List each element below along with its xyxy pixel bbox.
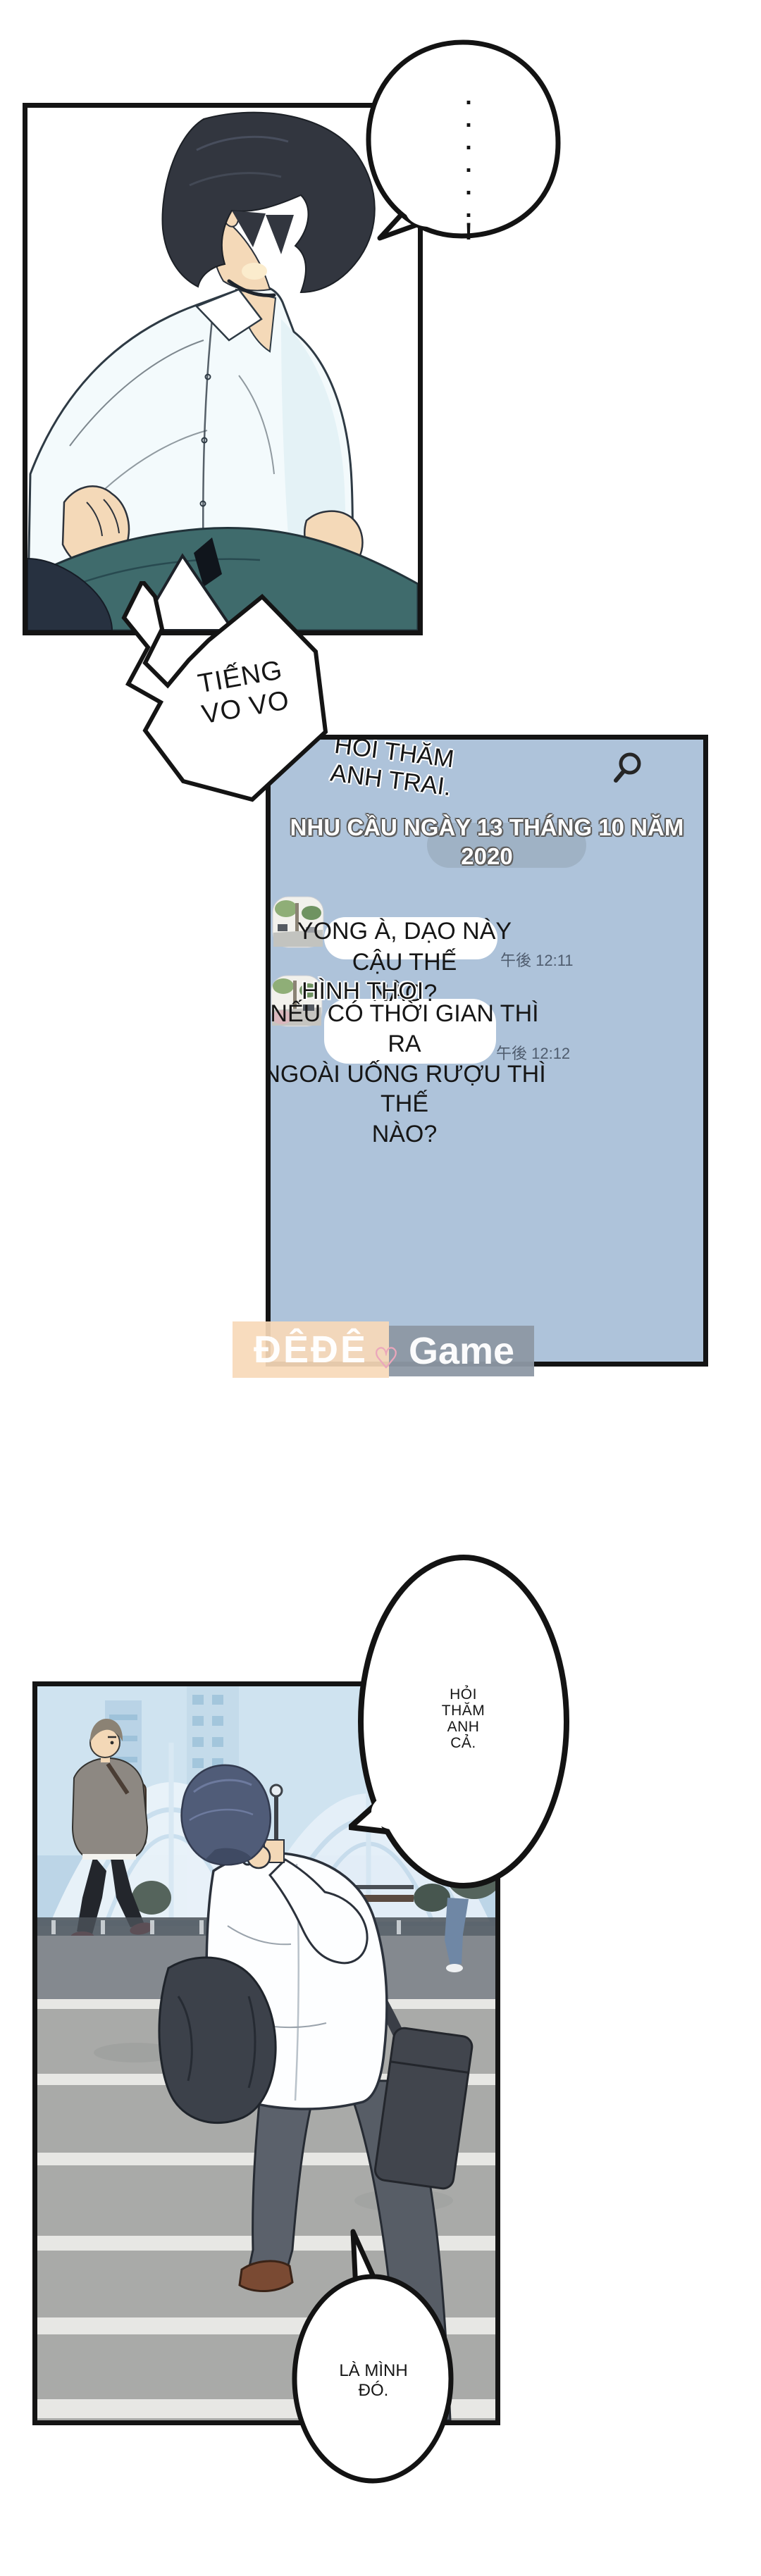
date-banner: NHU CẦU NGÀY 13 THÁNG 10 NĂM 2020 xyxy=(278,813,696,871)
ask-brother-text: HỎI THĂM ANH CẢ. xyxy=(405,1686,521,1751)
speech-bubble-its-me xyxy=(285,2212,462,2490)
its-me-text: LÀ MÌNH ĐÓ. xyxy=(321,2361,426,2401)
watermark-heart-icon: ♡ xyxy=(373,1343,399,1375)
sender-name: HÌNH THOI xyxy=(302,978,423,1005)
search-icon xyxy=(610,749,647,786)
watermark-right: Game xyxy=(389,1326,534,1376)
chat-screenshot-panel: HỎI THĂM ANH TRAI. NHU CẦU NGÀY 13 THÁNG… xyxy=(266,735,708,1367)
watermark-left: ĐÊĐÊ xyxy=(233,1321,389,1378)
comic-page: ......! TIẾNG VO VO HỎI THĂM ANH TRAI. N… xyxy=(0,0,761,2576)
watermark: ĐÊĐÊ Game ♡ xyxy=(233,1321,534,1378)
message-text: NẾU CÓ THỜI GIAN THÌ RA NGOÀI UỐNG RƯỢU … xyxy=(266,999,552,1150)
silence-text: ......! xyxy=(457,83,481,224)
